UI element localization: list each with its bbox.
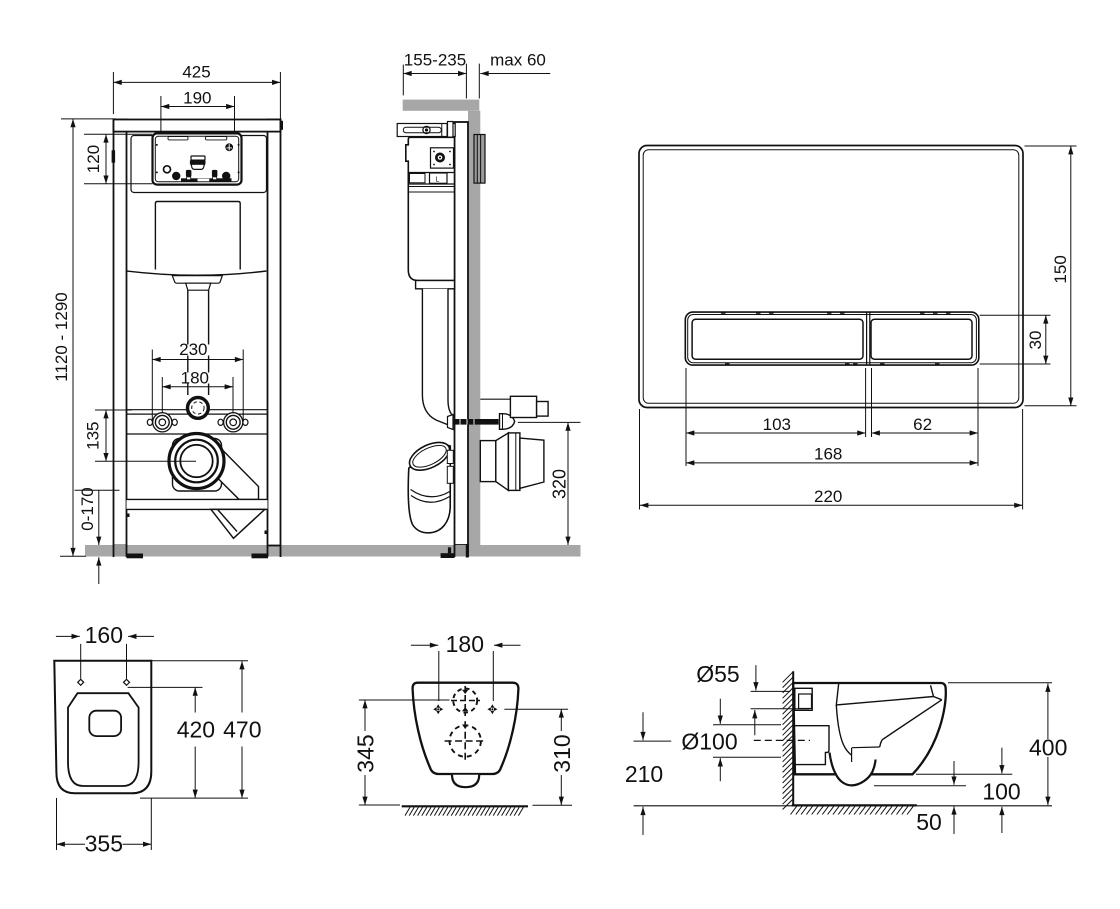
svg-text:155-235: 155-235 — [404, 51, 466, 70]
svg-text:max 60: max 60 — [490, 51, 546, 70]
svg-text:168: 168 — [814, 445, 842, 464]
svg-text:Ø55: Ø55 — [696, 661, 739, 687]
svg-text:180: 180 — [181, 368, 209, 387]
svg-text:470: 470 — [223, 716, 261, 742]
svg-text:0-170: 0-170 — [78, 487, 97, 530]
svg-text:320: 320 — [549, 469, 569, 499]
svg-text:160: 160 — [85, 622, 123, 648]
svg-text:120: 120 — [84, 145, 103, 173]
svg-text:180: 180 — [446, 631, 484, 657]
svg-text:62: 62 — [913, 415, 932, 434]
svg-text:355: 355 — [85, 831, 123, 857]
svg-text:400: 400 — [1029, 735, 1067, 761]
svg-text:135: 135 — [84, 422, 103, 450]
svg-text:Ø100: Ø100 — [681, 729, 737, 755]
svg-text:310: 310 — [549, 734, 575, 772]
svg-text:345: 345 — [353, 734, 379, 772]
svg-text:420: 420 — [177, 716, 215, 742]
svg-text:190: 190 — [183, 88, 211, 107]
svg-text:220: 220 — [814, 487, 842, 506]
svg-text:30: 30 — [1026, 331, 1045, 350]
svg-text:150: 150 — [1051, 255, 1070, 283]
svg-text:50: 50 — [916, 809, 942, 835]
svg-text:230: 230 — [179, 340, 207, 359]
svg-text:210: 210 — [625, 761, 663, 787]
svg-text:100: 100 — [982, 779, 1020, 805]
svg-text:425: 425 — [182, 63, 210, 82]
svg-text:103: 103 — [763, 415, 791, 434]
svg-text:L: L — [436, 177, 440, 184]
svg-text:1120 - 1290: 1120 - 1290 — [52, 292, 71, 381]
